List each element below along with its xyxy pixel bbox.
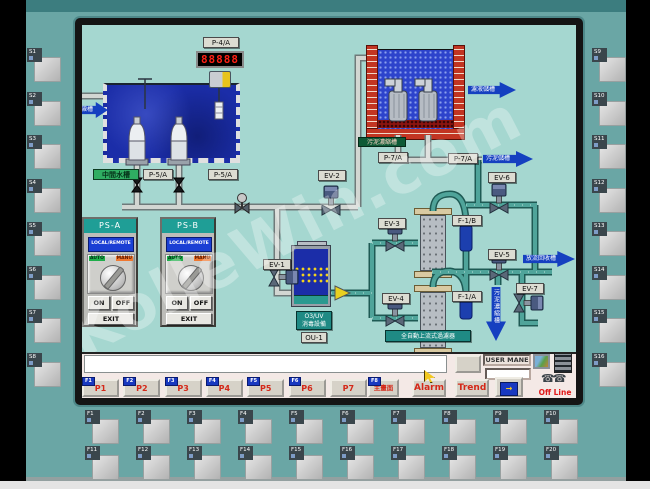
key-indicator-icon (291, 454, 295, 458)
on-button[interactable]: ON (166, 296, 188, 310)
panel-key[interactable]: S13 (592, 222, 625, 255)
fn-tag: F2 (123, 377, 136, 386)
label-ev6: EV-6 (488, 172, 516, 183)
valve-ev6-icon[interactable] (490, 184, 508, 213)
label-filter-unit: 全自動上流式過濾器 (385, 330, 471, 342)
key-label: S7 (27, 309, 42, 323)
key-label: S16 (592, 353, 607, 367)
reducer-icon (335, 286, 350, 300)
hmi-device: S1S2S3S4S5S6S7S8 S9S10S11S12S13S14S15S16… (0, 0, 650, 489)
panel-key[interactable]: S14 (592, 266, 625, 299)
home-button[interactable]: F8主畫面 (368, 379, 399, 397)
hmi-screen: P-4/A 88888 中間水槽 P-5/A P-5/A 沉澱槽 濾液儲槽 污泥… (75, 18, 583, 405)
mode-switch[interactable]: AUTO MANU (165, 254, 213, 294)
key-label: S12 (592, 179, 607, 193)
page-button-label: P3 (177, 384, 188, 393)
panel-key[interactable]: S2 (27, 92, 60, 125)
key-indicator-icon (87, 418, 91, 422)
panel-key[interactable]: F15 (289, 446, 322, 479)
panel-key[interactable]: S7 (27, 309, 60, 342)
key-indicator-icon (29, 274, 33, 278)
fn-tag: F8 (368, 377, 381, 386)
panel-key[interactable]: F12 (136, 446, 169, 479)
label-p4a: P-4/A (203, 37, 239, 48)
alarm-button[interactable]: Alarm (412, 379, 446, 397)
key-indicator-icon (546, 418, 550, 422)
piping-layer (82, 25, 576, 352)
label-p5a: P-5/A (143, 169, 173, 180)
label-ou1-device: O3/UV 消毒設備 (296, 311, 332, 330)
offline-status: Off Line (538, 388, 572, 397)
key-indicator-icon (291, 418, 295, 422)
label-mid-tank: 中間水槽 (93, 169, 139, 180)
key-label: S6 (27, 266, 42, 280)
label-p7b: P-7/A (448, 153, 478, 164)
page-button[interactable]: F5P5 (247, 379, 284, 397)
panel-key[interactable]: S8 (27, 353, 60, 386)
key-indicator-icon (594, 361, 598, 365)
exit-button[interactable]: EXIT (88, 313, 134, 325)
desk-surface (0, 481, 650, 489)
label-ev4: EV-4 (382, 293, 410, 304)
valve-ev1-icon[interactable] (269, 268, 298, 286)
page-button-label: P4 (219, 384, 230, 393)
label-p5b: P-5/A (208, 169, 238, 180)
label-ev7: EV-7 (516, 283, 544, 294)
key-label: S15 (592, 309, 607, 323)
key-label: S9 (592, 48, 607, 62)
auto-label: AUTO (89, 256, 105, 261)
key-indicator-icon (29, 100, 33, 104)
panel-top-strip (26, 0, 626, 12)
label-ev3: EV-3 (378, 218, 406, 229)
page-button-label: P7 (343, 384, 354, 393)
pump-p7b-icon[interactable] (415, 79, 437, 121)
key-indicator-icon (189, 418, 193, 422)
panel-key[interactable]: F17 (391, 446, 424, 479)
label-ev2: EV-2 (318, 170, 346, 181)
key-label: F11 (85, 446, 100, 460)
panel-key[interactable]: S5 (27, 222, 60, 255)
key-indicator-icon (444, 418, 448, 422)
label-ev1: EV-1 (263, 259, 291, 270)
mode-switch[interactable]: AUTO MANU (87, 254, 135, 294)
manu-label: MANU (194, 256, 211, 261)
panel-key[interactable]: F7 (391, 410, 424, 443)
manu-label: MANU (116, 256, 133, 261)
key-indicator-icon (594, 187, 598, 191)
key-indicator-icon (138, 454, 142, 458)
label-p7a: P-7/A (378, 152, 408, 163)
probe-sensor (215, 86, 223, 119)
page-button-label: P2 (136, 384, 147, 393)
key-indicator-icon (444, 454, 448, 458)
mode-knob[interactable] (100, 265, 126, 291)
key-label: F9 (493, 410, 508, 424)
panel-key[interactable]: S15 (592, 309, 625, 342)
panel-key[interactable]: F13 (187, 446, 220, 479)
mode-knob[interactable] (178, 265, 204, 291)
key-indicator-icon (594, 143, 598, 147)
panel-key[interactable]: F9 (493, 410, 526, 443)
key-indicator-icon (495, 454, 499, 458)
panel-key[interactable]: F2 (136, 410, 169, 443)
side-keys-right: S9S10S11S12S13S14S15S16 (592, 48, 625, 386)
panel-key[interactable]: F6 (340, 410, 373, 443)
faceplate-ps-a: PS-A LOCAL/REMOTE AUTO MANU ON OFF EXIT (82, 217, 138, 327)
key-label: F5 (289, 410, 304, 424)
label-ou1-line2: 消毒設備 (297, 321, 331, 329)
message-banner (84, 355, 447, 373)
key-indicator-icon (29, 361, 33, 365)
label-f1b: F-1/B (452, 215, 482, 226)
screen-toolbar: USER MANE F1P1F2P2F3P3F4P4F5P5F6P6P7 F8主… (82, 352, 576, 398)
key-label: F1 (85, 410, 100, 424)
fn-tag: F1 (82, 377, 95, 386)
page-button[interactable]: F6P6 (289, 379, 326, 397)
screen-picture-icon[interactable] (533, 354, 550, 369)
side-keys-left: S1S2S3S4S5S6S7S8 (27, 48, 60, 386)
panel-key[interactable]: S10 (592, 92, 625, 125)
panel-key[interactable]: F19 (493, 446, 526, 479)
blank-button[interactable] (455, 355, 481, 373)
panel-key[interactable]: F16 (340, 446, 373, 479)
key-indicator-icon (594, 56, 598, 60)
key-label: F8 (442, 410, 457, 424)
process-mimic: P-4/A 88888 中間水槽 P-5/A P-5/A 沉澱槽 濾液儲槽 污泥… (82, 25, 576, 352)
panel-key[interactable]: F10 (544, 410, 577, 443)
valve-ev7-icon[interactable] (514, 294, 543, 312)
local-remote-button[interactable]: LOCAL/REMOTE (88, 237, 134, 252)
page-button[interactable]: F3P3 (165, 379, 202, 397)
panel-key[interactable]: F5 (289, 410, 322, 443)
key-label: S4 (27, 179, 42, 193)
key-label: S2 (27, 92, 42, 106)
label-ou1-line1: O3/UV (297, 313, 331, 321)
label-ev5: EV-5 (488, 249, 516, 260)
panel-key[interactable]: F8 (442, 410, 475, 443)
key-indicator-icon (546, 454, 550, 458)
faceplate-title: PS-A (84, 219, 136, 233)
key-indicator-icon (87, 454, 91, 458)
key-label: S10 (592, 92, 607, 106)
panel-key[interactable]: S11 (592, 135, 625, 168)
key-label: F15 (289, 446, 304, 460)
key-label: F7 (391, 410, 406, 424)
key-label: F18 (442, 446, 457, 460)
fn-tag: F6 (289, 377, 302, 386)
page-button[interactable]: P7 (330, 379, 367, 397)
exit-door-icon: → (500, 382, 518, 396)
key-label: S5 (27, 222, 42, 236)
trend-button[interactable]: Trend (455, 379, 489, 397)
key-indicator-icon (240, 418, 244, 422)
key-indicator-icon (240, 454, 244, 458)
panel-key[interactable]: S4 (27, 179, 60, 212)
level-sensor (138, 79, 152, 109)
pump-p5b-icon[interactable] (168, 117, 190, 165)
label-f1a: F-1/A (452, 291, 482, 302)
key-label: F10 (544, 410, 559, 424)
panel-key[interactable]: F18 (442, 446, 475, 479)
pump-p7a-icon[interactable] (385, 79, 407, 121)
key-label: F6 (340, 410, 355, 424)
key-indicator-icon (29, 317, 33, 321)
key-indicator-icon (594, 100, 598, 104)
panel-key[interactable]: F1 (85, 410, 118, 443)
exit-button[interactable]: EXIT (166, 313, 212, 325)
key-label: F4 (238, 410, 253, 424)
key-indicator-icon (594, 230, 598, 234)
fn-tag: F4 (206, 377, 219, 386)
label-ou1: OU-1 (301, 332, 327, 343)
key-label: S8 (27, 353, 42, 367)
fn-keys-row1: F1F2F3F4F5F6F7F8F9F10 (85, 410, 577, 443)
key-label: F17 (391, 446, 406, 460)
key-label: F14 (238, 446, 253, 460)
panel-key[interactable]: S12 (592, 179, 625, 212)
key-label: F2 (136, 410, 151, 424)
key-label: S1 (27, 48, 42, 62)
key-label: S3 (27, 135, 42, 149)
page-button[interactable]: F4P4 (206, 379, 243, 397)
panel-key[interactable]: S1 (27, 48, 60, 81)
pump-p5a-icon[interactable] (126, 117, 148, 165)
key-label: F3 (187, 410, 202, 424)
panel-key[interactable]: S6 (27, 266, 60, 299)
off-button[interactable]: OFF (112, 296, 134, 310)
panel-key[interactable]: F4 (238, 410, 271, 443)
key-indicator-icon (342, 454, 346, 458)
fn-tag: F5 (247, 377, 260, 386)
page-button-label: P6 (301, 384, 312, 393)
panel-key[interactable]: F14 (238, 446, 271, 479)
phones-icon: ☎☎ (541, 370, 571, 387)
key-label: S11 (592, 135, 607, 149)
key-label: S14 (592, 266, 607, 280)
auto-label: AUTO (167, 256, 183, 261)
page-button[interactable]: F2P2 (123, 379, 160, 397)
panel-key[interactable]: F3 (187, 410, 220, 443)
key-indicator-icon (393, 418, 397, 422)
user-name-label: USER MANE (483, 354, 531, 366)
key-indicator-icon (594, 317, 598, 321)
key-indicator-icon (138, 418, 142, 422)
key-indicator-icon (29, 143, 33, 147)
logout-button[interactable]: → (495, 377, 523, 397)
faceplate-ps-b: PS-B LOCAL/REMOTE AUTO MANU ON OFF EXIT (160, 217, 216, 327)
fn-keys-row2: F11F12F13F14F15F16F17F18F19F20 (85, 446, 577, 479)
panel-key[interactable]: S3 (27, 135, 60, 168)
key-label: F19 (493, 446, 508, 460)
key-indicator-icon (29, 56, 33, 60)
key-indicator-icon (393, 454, 397, 458)
faceplate-title: PS-B (162, 219, 214, 233)
key-indicator-icon (189, 454, 193, 458)
flow-display: 88888 (196, 51, 244, 68)
page-button[interactable]: F1P1 (82, 379, 119, 397)
filter-b-backwash-pump-icon[interactable] (460, 225, 472, 251)
panel-key[interactable]: F11 (85, 446, 118, 479)
key-label: F16 (340, 446, 355, 460)
valve-ev2-icon[interactable] (322, 186, 340, 215)
key-label: F12 (136, 446, 151, 460)
panel-key[interactable]: S16 (592, 353, 625, 386)
key-label: F20 (544, 446, 559, 460)
key-indicator-icon (29, 187, 33, 191)
key-indicator-icon (29, 230, 33, 234)
key-indicator-icon (495, 418, 499, 422)
flow-transmitter-icon (209, 71, 231, 88)
panel-key[interactable]: F20 (544, 446, 577, 479)
key-indicator-icon (594, 274, 598, 278)
key-indicator-icon (342, 418, 346, 422)
panel-key[interactable]: S9 (592, 48, 625, 81)
page-button-label: P5 (260, 384, 271, 393)
on-button[interactable]: ON (88, 296, 110, 310)
key-label: F13 (187, 446, 202, 460)
fn-tag: F3 (165, 377, 178, 386)
local-remote-button[interactable]: LOCAL/REMOTE (166, 237, 212, 252)
label-sludge-thickener: 污泥濃縮槽 (358, 137, 406, 147)
key-label: S13 (592, 222, 607, 236)
off-button[interactable]: OFF (190, 296, 212, 310)
page-button-label: P1 (95, 384, 106, 393)
